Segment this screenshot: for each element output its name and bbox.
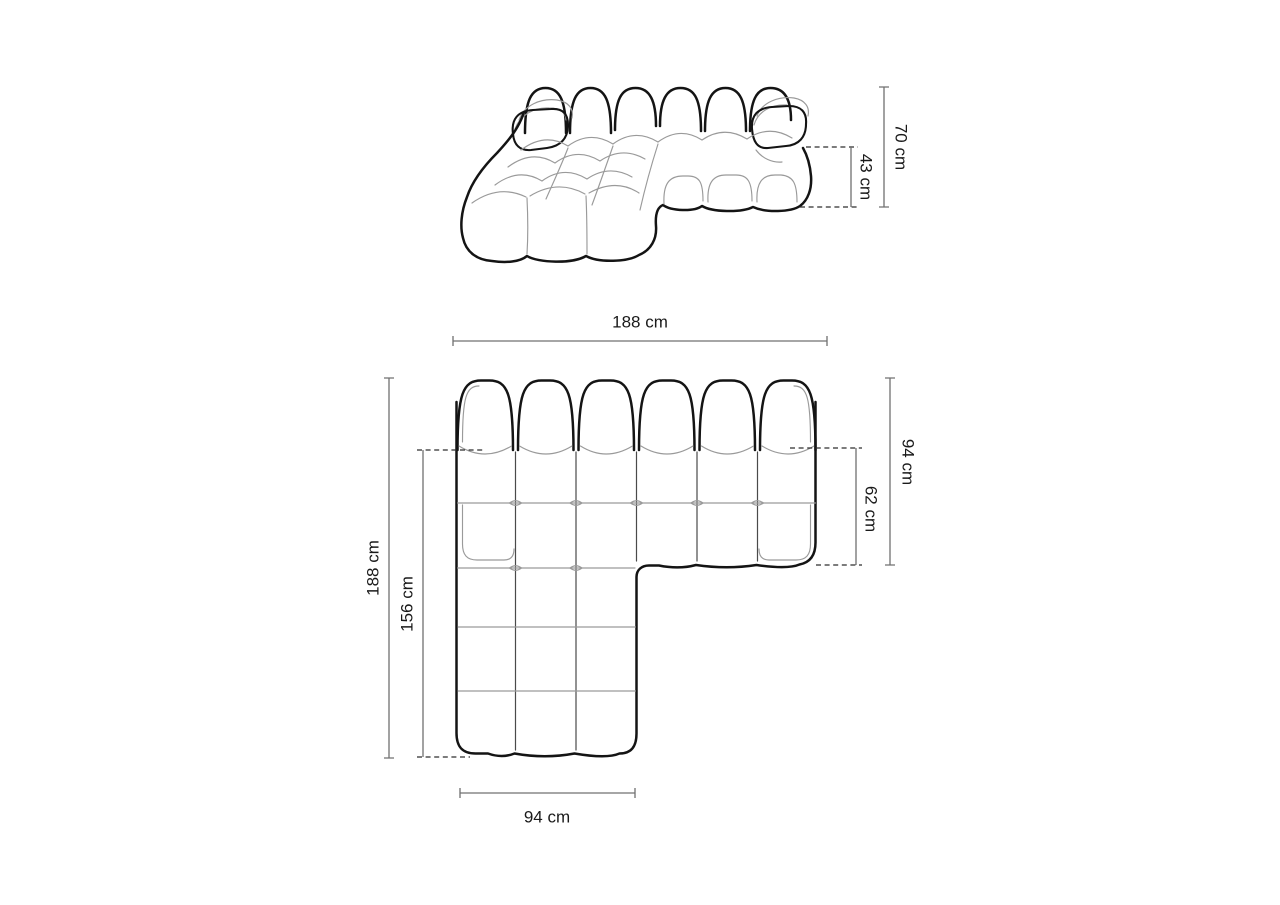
dimension-label-total-length: 188 cm [365,540,382,596]
side-view-dimension-lines [800,87,889,207]
top-view-illustration [457,381,816,757]
dimension-label-chaise-width: 94 cm [524,809,570,826]
dimension-label-total-width: 188 cm [612,314,668,331]
diagram-canvas [0,0,1280,905]
dimension-label-total-height: 70 cm [893,124,910,170]
dimension-label-chaise-length: 156 cm [399,576,416,632]
dimension-label-seat-height: 43 cm [858,154,875,200]
sofa-dimension-diagram: 70 cm 43 cm 188 cm 94 cm 62 cm 188 cm 15… [0,0,1280,905]
dimension-label-total-depth: 94 cm [900,439,917,485]
side-view-illustration [461,88,811,262]
dimension-label-seat-depth: 62 cm [863,486,880,532]
